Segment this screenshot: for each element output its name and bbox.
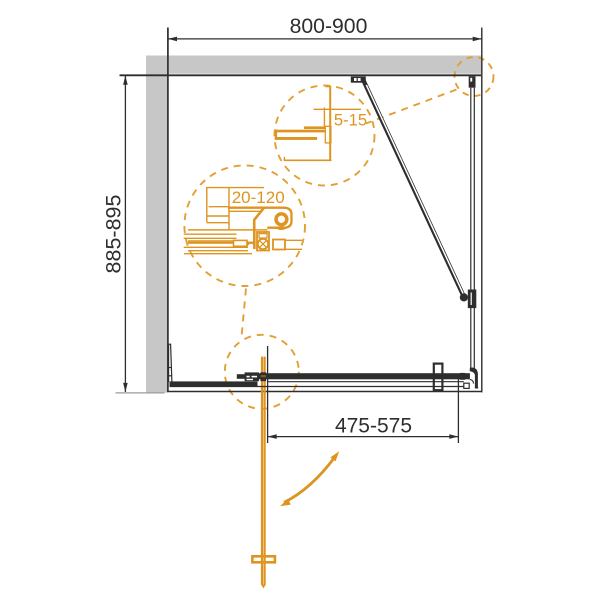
svg-text:20-120: 20-120 (232, 188, 285, 207)
svg-text:5-15: 5-15 (334, 111, 367, 130)
svg-text:475-575: 475-575 (335, 414, 412, 437)
svg-text:885-895: 885-895 (102, 195, 126, 274)
svg-text:800-900: 800-900 (290, 15, 368, 38)
